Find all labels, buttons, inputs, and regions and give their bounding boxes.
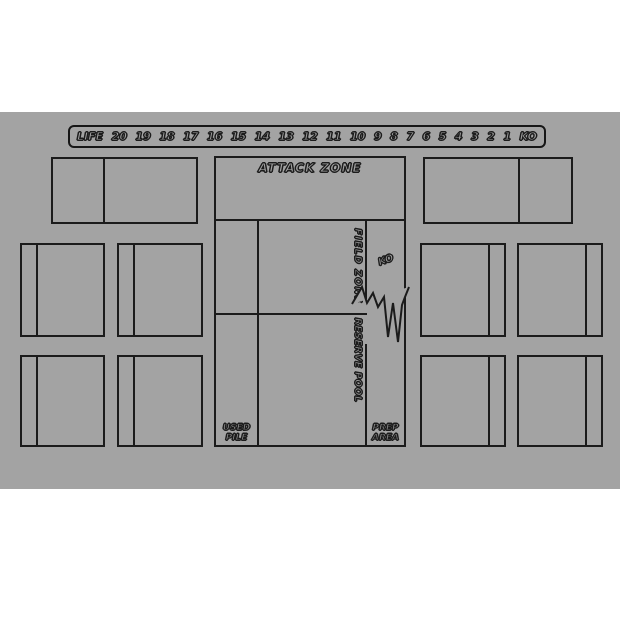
attack-zone-label: ATTACK ZONE xyxy=(216,161,404,175)
life-value-12: 12 xyxy=(302,130,317,143)
life-value-19: 19 xyxy=(136,130,151,143)
slot-divider xyxy=(518,159,520,222)
slot-divider xyxy=(585,357,587,445)
life-value-17: 17 xyxy=(183,130,198,143)
right-card-slot-3 xyxy=(420,355,506,447)
top-left-dual-slot xyxy=(51,157,198,224)
central-zone-panel: ATTACK ZONE FIELD ZONE RESERVE POOL KO U… xyxy=(214,156,406,447)
life-value-1: 1 xyxy=(503,130,511,143)
slot-divider xyxy=(36,245,38,335)
left-card-slot-3 xyxy=(20,355,105,447)
slot-divider xyxy=(488,357,490,445)
slot-divider xyxy=(133,357,135,445)
life-value-ko: KO xyxy=(520,130,537,143)
life-value-2: 2 xyxy=(487,130,495,143)
life-track: LIFE 20 19 18 17 16 15 14 13 12 11 10 9 … xyxy=(68,125,546,148)
left-card-slot-1 xyxy=(20,243,105,337)
life-value-15: 15 xyxy=(231,130,246,143)
right-card-slot-2 xyxy=(517,243,603,337)
life-value-5: 5 xyxy=(439,130,447,143)
right-card-slot-4 xyxy=(517,355,603,447)
prep-area-label: PREP AREA xyxy=(367,423,404,443)
slot-divider xyxy=(103,159,105,222)
life-value-6: 6 xyxy=(423,130,431,143)
slot-divider xyxy=(488,245,490,335)
life-value-4: 4 xyxy=(455,130,463,143)
life-value-8: 8 xyxy=(390,130,398,143)
left-column-divider xyxy=(257,219,259,445)
life-value-7: 7 xyxy=(406,130,414,143)
used-pile-label: USED PILE xyxy=(216,423,257,443)
prep-area-line1: PREP xyxy=(367,423,404,433)
life-value-13: 13 xyxy=(279,130,294,143)
left-card-slot-2 xyxy=(117,243,203,337)
life-value-3: 3 xyxy=(471,130,479,143)
life-value-18: 18 xyxy=(159,130,174,143)
prep-area-line2: AREA xyxy=(367,433,404,443)
slot-divider xyxy=(36,357,38,445)
used-pile-line2: PILE xyxy=(216,433,257,443)
life-value-11: 11 xyxy=(326,130,341,143)
life-value-10: 10 xyxy=(350,130,365,143)
slot-divider xyxy=(133,245,135,335)
used-pile-line1: USED xyxy=(216,423,257,433)
attack-zone-bottom-line xyxy=(216,219,404,221)
ko-zone-label: KO xyxy=(368,250,404,272)
explosion-burst-icon xyxy=(345,278,415,348)
life-value-14: 14 xyxy=(255,130,270,143)
playmat-surface: LIFE 20 19 18 17 16 15 14 13 12 11 10 9 … xyxy=(0,112,620,489)
life-value-9: 9 xyxy=(374,130,382,143)
top-right-dual-slot xyxy=(423,157,573,224)
right-card-slot-1 xyxy=(420,243,506,337)
left-card-slot-4 xyxy=(117,355,203,447)
playmat-image: LIFE 20 19 18 17 16 15 14 13 12 11 10 9 … xyxy=(0,0,620,620)
slot-divider xyxy=(585,245,587,335)
life-value-20: 20 xyxy=(112,130,127,143)
life-value-16: 16 xyxy=(207,130,222,143)
life-track-title: LIFE xyxy=(77,130,103,143)
